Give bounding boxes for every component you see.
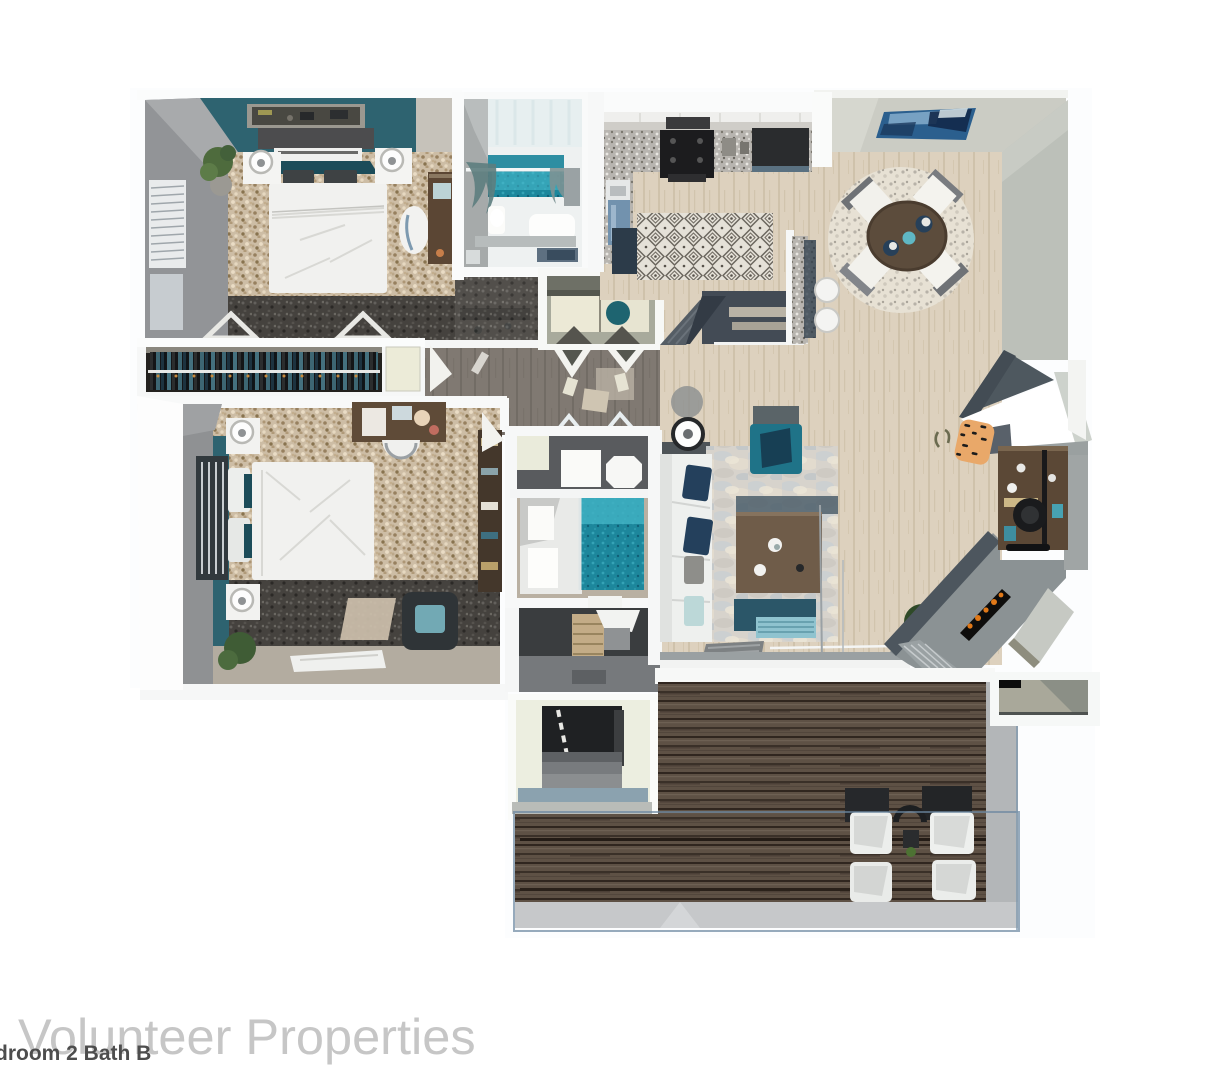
svg-text:droom 2 Bath B: droom 2 Bath B xyxy=(0,1042,151,1065)
